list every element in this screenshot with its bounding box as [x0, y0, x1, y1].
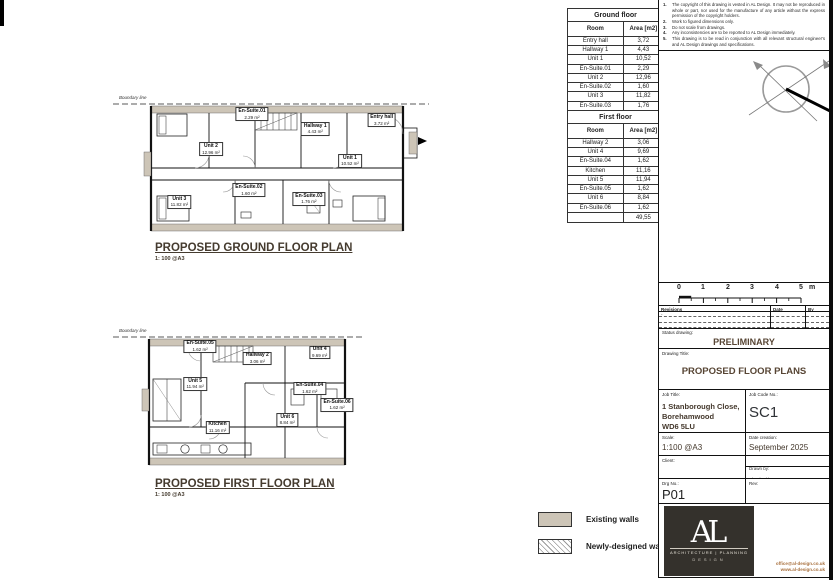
- revision-col-revisions: Revisions -: [659, 306, 771, 328]
- north-arrow-icon: [739, 59, 829, 131]
- table-row: Unit 511,94: [568, 175, 664, 184]
- scale-bar-graphic: [659, 293, 829, 305]
- room-label: En-Suite.04 1.62 m²: [293, 382, 326, 396]
- first-floor-area-table: First floor Room Area [m2] Hallway 23,06…: [567, 110, 664, 223]
- rev-cell: Rev:: [746, 479, 829, 503]
- sheet-right-border: [829, 0, 833, 580]
- room-label: Unit 6 8.84 m²: [277, 413, 298, 427]
- note-item: 5.This drawing is to be read in conjunct…: [663, 36, 825, 47]
- scale-bar: 0 1 2 3 4 5 m: [659, 283, 829, 306]
- legend-new-walls: Newly-designed walls: [538, 539, 669, 554]
- drg-no-value: P01: [662, 487, 742, 502]
- drawing-title-value: PROPOSED FLOOR PLANS: [659, 366, 829, 377]
- table-total-row: 49,55: [568, 213, 664, 223]
- table-row: Unit 212,96: [568, 73, 664, 82]
- drawing-number-panel: Drg No.: P01 Rev:: [659, 479, 829, 504]
- client-label: Client:: [662, 458, 742, 463]
- job-title-cell: Job Title: 1 Stanborough Close, Borehamw…: [659, 390, 746, 433]
- scale-tick: 1: [701, 284, 705, 291]
- revision-table: Revisions - Date By: [659, 306, 829, 329]
- scale-unit: m: [809, 284, 815, 291]
- job-title-line: Borehamwood: [662, 412, 742, 422]
- ground-floor-plan-scale: 1: 100 @A3: [155, 256, 185, 262]
- company-logo: AL ARCHITECTURE | PLANNING DESIGN: [664, 506, 754, 576]
- table-title: Ground floor: [568, 9, 664, 22]
- scale-tick: 5: [799, 284, 803, 291]
- table-title: First floor: [568, 111, 664, 124]
- contact-website: www.al-design.co.uk: [776, 567, 825, 573]
- ground-floor-area-table: Ground floor Room Area [m2] Entry hall3,…: [567, 8, 664, 121]
- room-label: En-Suite.06 1.62 m²: [320, 398, 353, 412]
- drawing-title-panel: Drawing Title: PROPOSED FLOOR PLANS: [659, 349, 829, 390]
- sheet-corner-mark: [0, 0, 4, 26]
- drawing-title-label: Drawing Title:: [662, 351, 689, 356]
- table-row: Unit 49,69: [568, 147, 664, 156]
- column-header-room: Room: [568, 124, 624, 138]
- room-label: Unit 3 11.82 m²: [168, 195, 191, 209]
- logo-tagline: DESIGN: [692, 557, 725, 562]
- room-label: Unit 4 9.69 m²: [309, 346, 330, 360]
- table-row: Unit 311,82: [568, 92, 664, 101]
- client-cell: Client:: [659, 456, 746, 479]
- column-header-room: Room: [568, 22, 624, 36]
- table-row: Hallway 14,43: [568, 45, 664, 54]
- ground-floor-plan: Boundary line: [113, 94, 429, 240]
- date-label: Date creation:: [749, 435, 826, 440]
- table-row: En-Suite.051,62: [568, 185, 664, 194]
- revision-col-by: By: [806, 306, 829, 328]
- note-item: 1.The copyright of this drawing is veste…: [663, 2, 825, 19]
- room-label: En-Suite.02 1.60 m²: [232, 183, 265, 197]
- room-label: Hallway 2 3.06 m²: [243, 352, 272, 366]
- job-code-cell: Job Code No.: SC1: [746, 390, 829, 433]
- first-floor-plan: Boundary line: [113, 327, 362, 477]
- date-value: September 2025: [749, 443, 826, 452]
- scale-cell: Scale: 1:100 @A3: [659, 433, 746, 455]
- drawn-checked-cell: Drawn by: JM Checked by: AL: [746, 456, 829, 479]
- contact-info: office@al-design.co.uk www.al-design.co.…: [776, 561, 825, 573]
- status-panel: Status drawing: PRELIMINARY: [659, 329, 829, 349]
- logo-monogram: AL: [691, 520, 728, 546]
- logo-subtitle: ARCHITECTURE | PLANNING: [670, 548, 748, 556]
- room-label: Hallway 1 4.43 m²: [301, 122, 330, 136]
- status-value: PRELIMINARY: [659, 337, 829, 347]
- general-notes: 1.The copyright of this drawing is veste…: [659, 0, 829, 51]
- job-code-value: SC1: [749, 404, 826, 421]
- room-label: Entry hall 3.72 m²: [367, 113, 396, 127]
- scale-tick: 3: [750, 284, 754, 291]
- ground-floor-plan-title: PROPOSED GROUND FLOOR PLAN: [155, 242, 352, 254]
- rev-label: Rev:: [749, 481, 826, 486]
- job-code-label: Job Code No.:: [749, 392, 826, 397]
- room-label: Kitchen 11.16 m²: [205, 421, 229, 435]
- existing-wall-swatch: [538, 512, 572, 527]
- room-label: Unit 5 11.94 m²: [183, 377, 206, 391]
- table-row: Unit 68,84: [568, 194, 664, 203]
- table-row: En-Suite.012,29: [568, 64, 664, 73]
- table-row: En-Suite.041,62: [568, 157, 664, 166]
- room-label: En-Suite.05 1.62 m²: [184, 340, 217, 354]
- room-label: En-Suite.03 1.76 m²: [292, 192, 325, 206]
- drg-no-cell: Drg No.: P01: [659, 479, 746, 503]
- table-row: Kitchen11,16: [568, 166, 664, 175]
- scale-date-panel: Scale: 1:100 @A3 Date creation: Septembe…: [659, 433, 829, 456]
- scale-tick: 2: [726, 284, 730, 291]
- legend-existing-walls: Existing walls: [538, 512, 639, 527]
- job-title-line: WD6 5LU: [662, 422, 742, 432]
- room-label: Unit 1 10.52 m²: [338, 154, 362, 168]
- date-cell: Date creation: September 2025: [746, 433, 829, 455]
- revision-col-date: Date: [771, 306, 806, 328]
- table-row: Unit 110,52: [568, 55, 664, 64]
- north-arrow-panel: [659, 51, 829, 283]
- drg-no-label: Drg No.:: [662, 481, 742, 486]
- scale-tick: 4: [775, 284, 779, 291]
- table-row: Entry hall3,72: [568, 36, 664, 45]
- table-row: En-Suite.061,62: [568, 203, 664, 212]
- scale-label: Scale:: [662, 435, 742, 440]
- room-label: En-Suite.01 2.29 m²: [235, 107, 268, 121]
- client-drawn-panel: Client: Drawn by: JM Checked by: AL: [659, 456, 829, 479]
- logo-panel: AL ARCHITECTURE | PLANNING DESIGN office…: [659, 504, 829, 578]
- job-panel: Job Title: 1 Stanborough Close, Borehamw…: [659, 390, 829, 433]
- legend-label: Newly-designed walls: [586, 542, 669, 551]
- legend-label: Existing walls: [586, 515, 639, 524]
- drawing-sheet: Boundary line: [0, 0, 836, 580]
- table-row: Hallway 23,06: [568, 138, 664, 147]
- job-title-label: Job Title:: [662, 392, 742, 397]
- first-floor-plan-title: PROPOSED FIRST FLOOR PLAN: [155, 478, 335, 490]
- job-title-line: 1 Stanborough Close,: [662, 402, 742, 412]
- title-block: 1.The copyright of this drawing is veste…: [658, 0, 829, 578]
- status-label: Status drawing:: [662, 330, 693, 335]
- table-row: En-Suite.021,60: [568, 83, 664, 92]
- revision-row: [659, 323, 770, 328]
- room-label: Unit 2 12.96 m²: [199, 143, 223, 157]
- scale-value: 1:100 @A3: [662, 443, 742, 452]
- scale-tick: 0: [677, 284, 681, 291]
- new-wall-swatch: [538, 539, 572, 554]
- first-floor-plan-scale: 1: 100 @A3: [155, 492, 185, 498]
